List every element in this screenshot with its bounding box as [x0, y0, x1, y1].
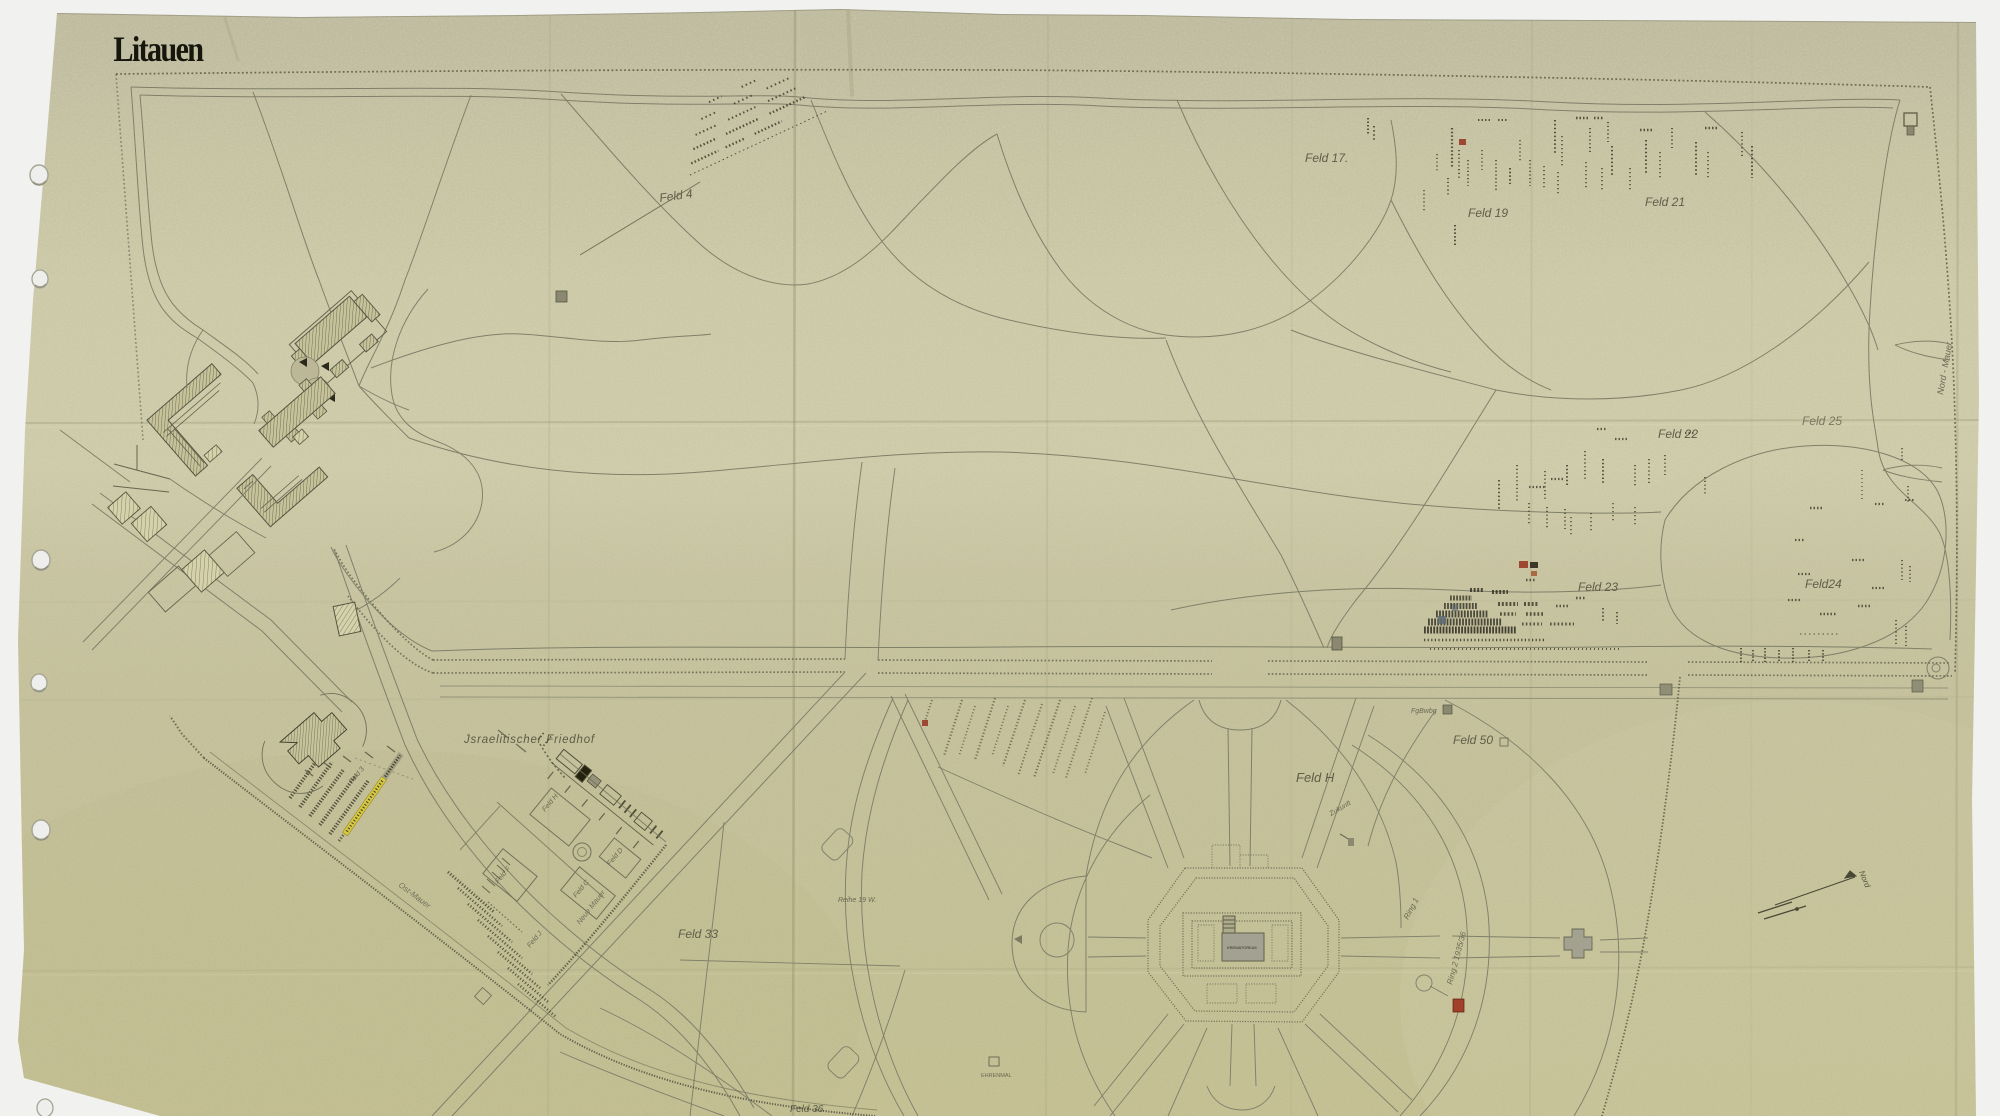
svg-text:Reihe 19 W.: Reihe 19 W. [838, 897, 876, 904]
svg-text:Feld 17.: Feld 17. [1305, 151, 1348, 165]
svg-text:Feld 23: Feld 23 [1578, 580, 1618, 594]
svg-text:Feld 33: Feld 33 [678, 927, 718, 941]
svg-text:Litauen: Litauen [113, 30, 203, 70]
svg-text:Jsraelitischer Friedhof: Jsraelitischer Friedhof [463, 734, 596, 746]
svg-text:Feld H: Feld H [1296, 770, 1335, 785]
svg-text:KREMATORIUM: KREMATORIUM [1227, 945, 1257, 950]
svg-text:Feld 25: Feld 25 [1802, 414, 1842, 428]
svg-text:Feld 19: Feld 19 [1468, 206, 1508, 220]
svg-text:EHRENMAL: EHRENMAL [981, 1073, 1012, 1079]
svg-text:Feld 50: Feld 50 [1453, 733, 1493, 747]
svg-text:Feld 21: Feld 21 [1645, 195, 1685, 209]
svg-text:Feld24: Feld24 [1805, 577, 1842, 591]
